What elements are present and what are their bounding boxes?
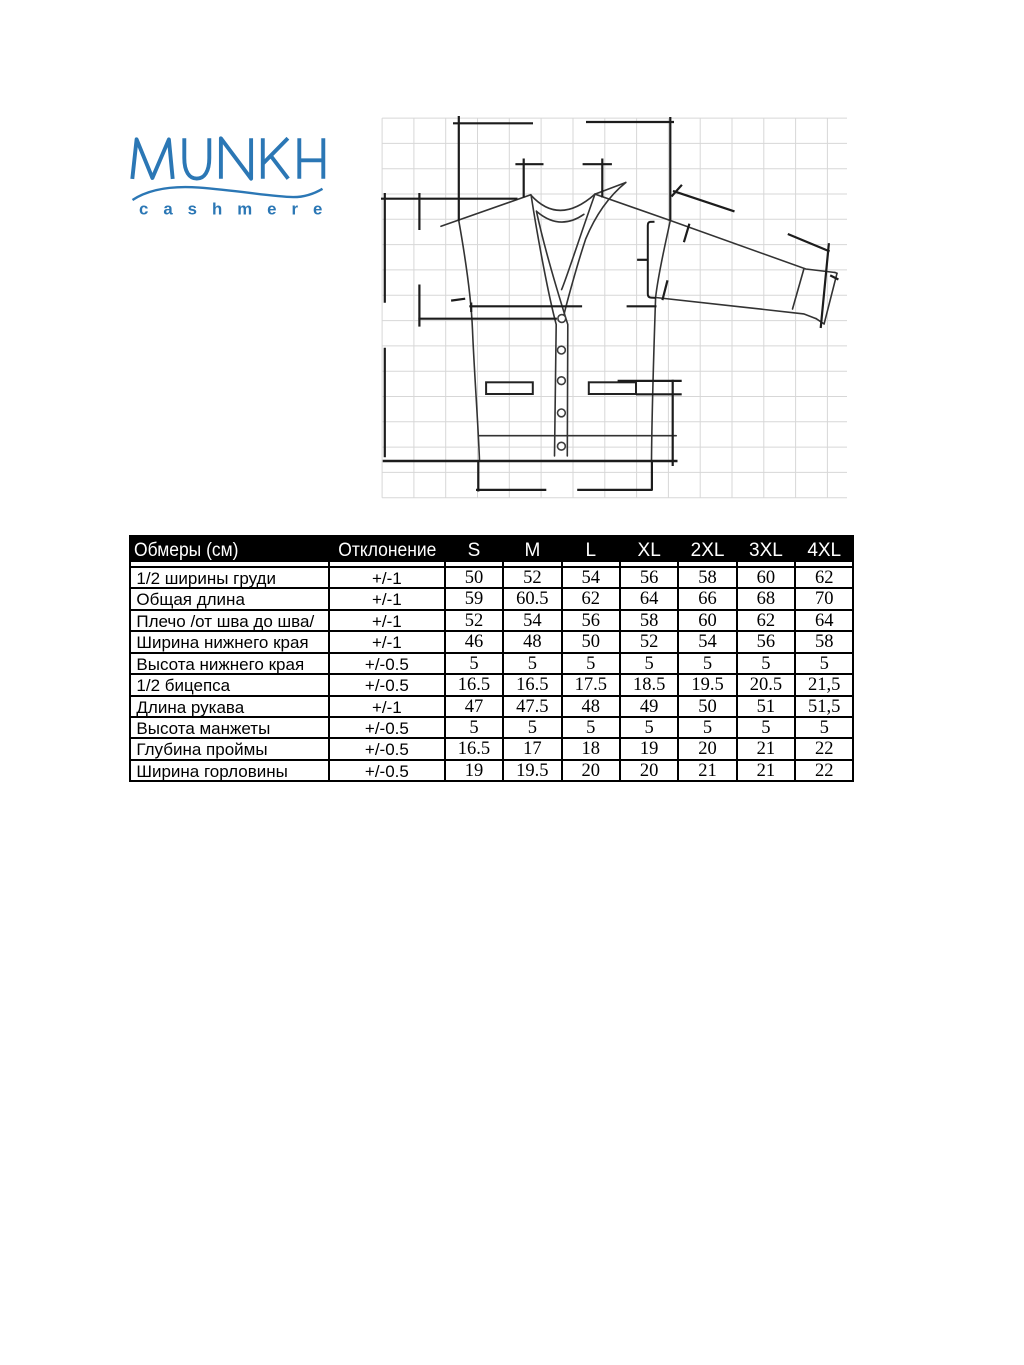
svg-text:cashmere: cashmere bbox=[139, 200, 335, 219]
